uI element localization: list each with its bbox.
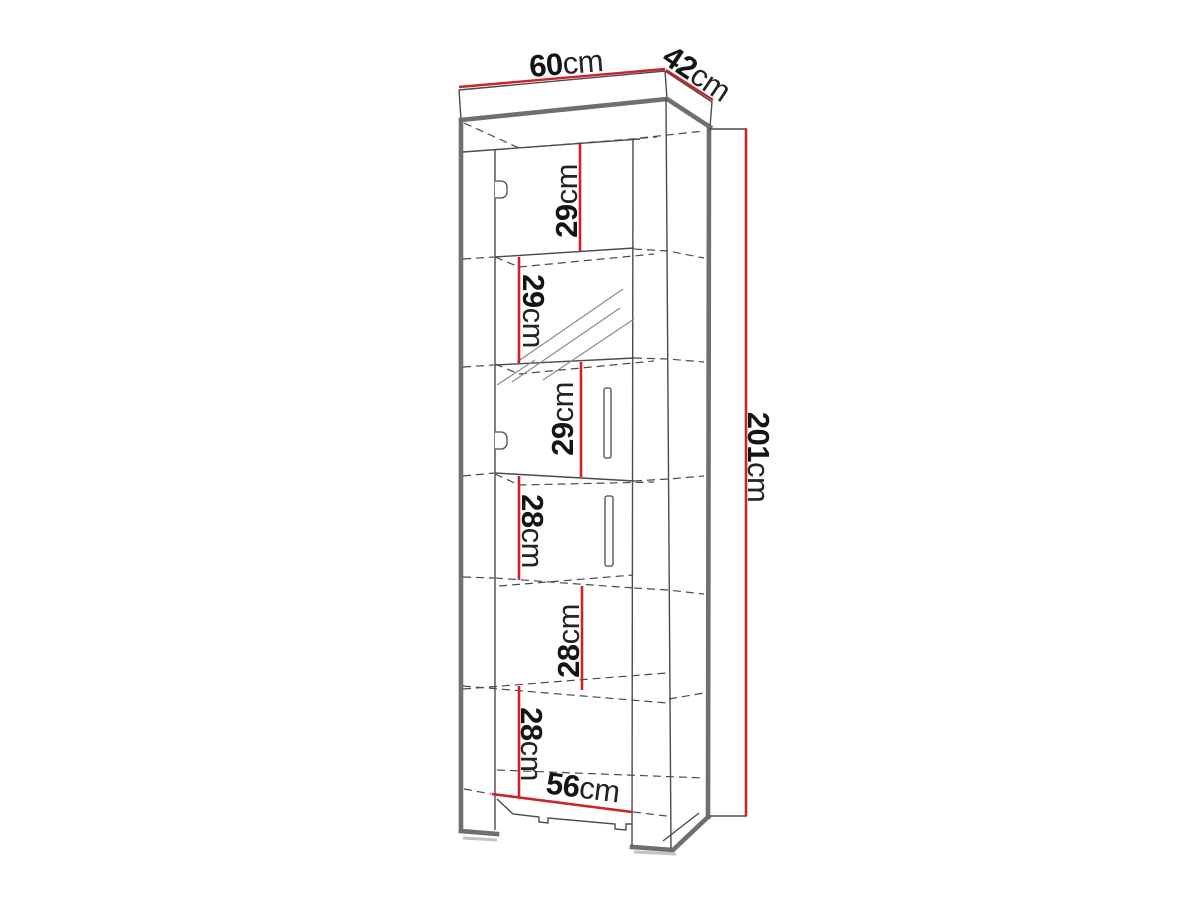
door-right-edge <box>632 140 633 846</box>
right-leg-shadow <box>634 852 676 854</box>
shelf4-left-stile-dash <box>463 577 494 578</box>
top-side-dash <box>640 131 704 138</box>
dimension-label-compartment-6: 28cm <box>515 707 550 781</box>
lower-door-handle <box>605 496 613 566</box>
crown-left-edge <box>459 90 461 120</box>
bottom-left-stile-dash <box>464 789 491 794</box>
shelf2-side-dash <box>634 358 704 362</box>
shelf3-left-stile-dash <box>463 473 494 476</box>
dimension-label-compartment-4: 28cm <box>516 494 551 568</box>
cabinet-technical-drawing: 60cm 42cm 201cm 29cm 29cm 29cm 28cm 28cm… <box>0 0 1200 900</box>
shelf5-side-dash <box>669 693 704 699</box>
shelf2-front-line <box>495 358 634 365</box>
crown-front-corner-edge <box>665 71 667 99</box>
shelf5-front-line-hidden <box>463 686 667 703</box>
diagram-canvas: 60cm 42cm 201cm 29cm 29cm 29cm 28cm 28cm… <box>0 0 1200 900</box>
left-leg-shadow <box>463 838 497 840</box>
dimension-label-compartment-1: 29cm <box>549 164 584 238</box>
glass-door-hinge-bottom <box>495 432 507 449</box>
right-leg-inner-diagonal <box>663 813 699 841</box>
dimension-label-compartment-3: 29cm <box>545 382 580 456</box>
right-back-edge <box>708 127 709 817</box>
shelf1-side-dash <box>634 249 704 258</box>
right-leg-bottom-edges <box>632 817 708 850</box>
upper-door-handle <box>604 388 611 458</box>
dimension-label-width: 60cm <box>528 43 604 84</box>
shelf-lines <box>463 139 667 812</box>
glass-hatch-line <box>543 319 634 380</box>
glass-door-hinge-top <box>495 181 507 198</box>
dimension-label-compartment-2: 29cm <box>517 274 552 348</box>
left-leg-bottom-edge <box>461 831 497 834</box>
shelf1-front-line <box>495 248 634 257</box>
crown-bottom-thick-edge <box>461 99 710 127</box>
shelf1-left-stile-dash <box>463 257 494 259</box>
front-right-corner-edge <box>666 99 671 848</box>
dimension-label-compartment-5: 28cm <box>551 604 586 678</box>
shelf3-front-line <box>495 473 634 481</box>
bottom-front-edge-dash-right <box>633 812 667 816</box>
shelf4-front-line-hidden <box>495 578 634 588</box>
shelf2-left-stile-dash <box>463 365 494 367</box>
body-outline <box>461 99 709 850</box>
dimension-label-height: 201cm <box>742 412 777 503</box>
crown-outline <box>459 71 712 127</box>
